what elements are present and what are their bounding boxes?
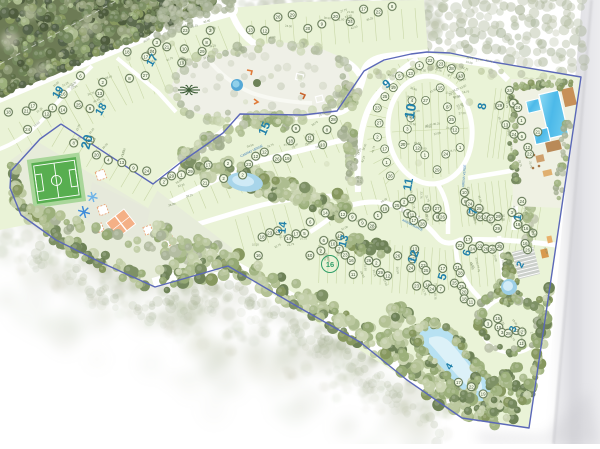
- svg-text:12: 12: [262, 150, 267, 155]
- svg-text:14: 14: [60, 107, 65, 112]
- svg-text:17: 17: [361, 7, 366, 12]
- svg-text:29: 29: [188, 169, 193, 174]
- svg-text:22: 22: [376, 10, 381, 15]
- svg-text:23: 23: [183, 28, 188, 33]
- svg-text:23: 23: [267, 230, 272, 235]
- svg-text:20: 20: [305, 26, 310, 31]
- svg-text:17: 17: [30, 104, 35, 109]
- svg-text:27: 27: [143, 73, 148, 78]
- svg-text:14: 14: [286, 236, 291, 241]
- svg-text:10: 10: [182, 46, 187, 51]
- svg-text:13: 13: [97, 91, 102, 96]
- svg-text:24: 24: [144, 169, 149, 174]
- svg-text:24: 24: [25, 127, 30, 132]
- svg-text:13: 13: [119, 160, 124, 165]
- svg-text:25: 25: [76, 102, 81, 107]
- svg-text:21: 21: [202, 180, 207, 185]
- svg-text:13: 13: [248, 28, 253, 33]
- svg-text:21: 21: [164, 44, 169, 49]
- svg-text:18: 18: [6, 110, 11, 115]
- svg-text:29: 29: [290, 12, 295, 17]
- svg-text:28: 28: [331, 117, 336, 122]
- svg-text:29: 29: [200, 49, 205, 54]
- svg-text:18: 18: [125, 50, 130, 55]
- svg-text:19: 19: [285, 156, 290, 161]
- svg-text:26: 26: [276, 15, 281, 20]
- svg-text:18: 18: [260, 235, 265, 240]
- svg-text:23: 23: [246, 162, 251, 167]
- svg-text:12: 12: [262, 28, 267, 33]
- svg-text:17: 17: [294, 231, 299, 236]
- svg-text:26: 26: [275, 156, 280, 161]
- svg-text:12: 12: [253, 154, 258, 159]
- svg-text:21: 21: [24, 109, 29, 114]
- svg-text:20: 20: [94, 153, 99, 158]
